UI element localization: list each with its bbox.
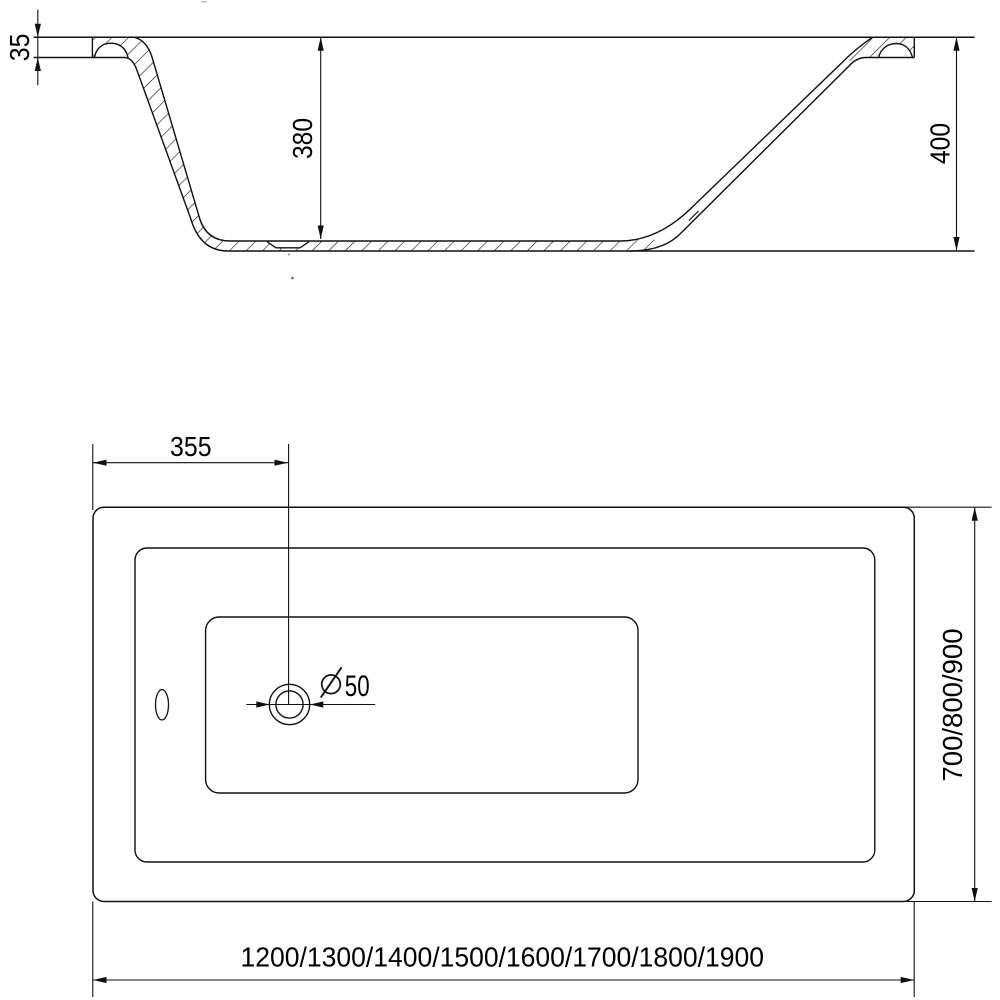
svg-text:50: 50: [345, 670, 370, 703]
svg-text:400: 400: [925, 123, 956, 164]
svg-text:1200/1300/1400/1500/1600/1700/: 1200/1300/1400/1500/1600/1700/1800/1900: [241, 942, 765, 973]
svg-text:380: 380: [287, 118, 318, 159]
svg-text:700/800/900: 700/800/900: [937, 629, 968, 782]
svg-text:355: 355: [170, 431, 212, 462]
svg-text:35: 35: [4, 34, 35, 62]
